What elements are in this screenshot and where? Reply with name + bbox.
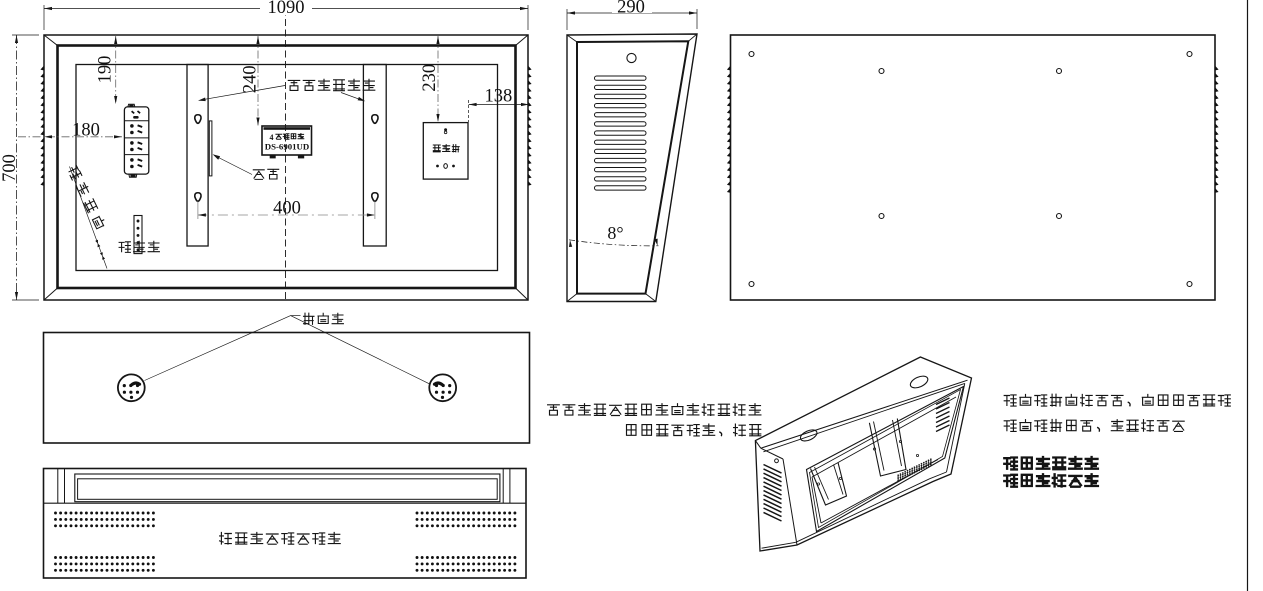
svg-text:138: 138 [485, 87, 513, 107]
svg-text:1090: 1090 [268, 0, 305, 18]
svg-text:240: 240 [241, 65, 261, 93]
svg-text:180: 180 [72, 120, 100, 140]
svg-text:230: 230 [420, 64, 440, 92]
svg-text:8°: 8° [607, 223, 623, 243]
svg-text:290: 290 [617, 0, 645, 18]
svg-text:DS-6901UD: DS-6901UD [265, 141, 309, 151]
svg-text:190: 190 [96, 56, 116, 84]
svg-text:700: 700 [0, 154, 20, 182]
svg-text:400: 400 [273, 198, 301, 218]
